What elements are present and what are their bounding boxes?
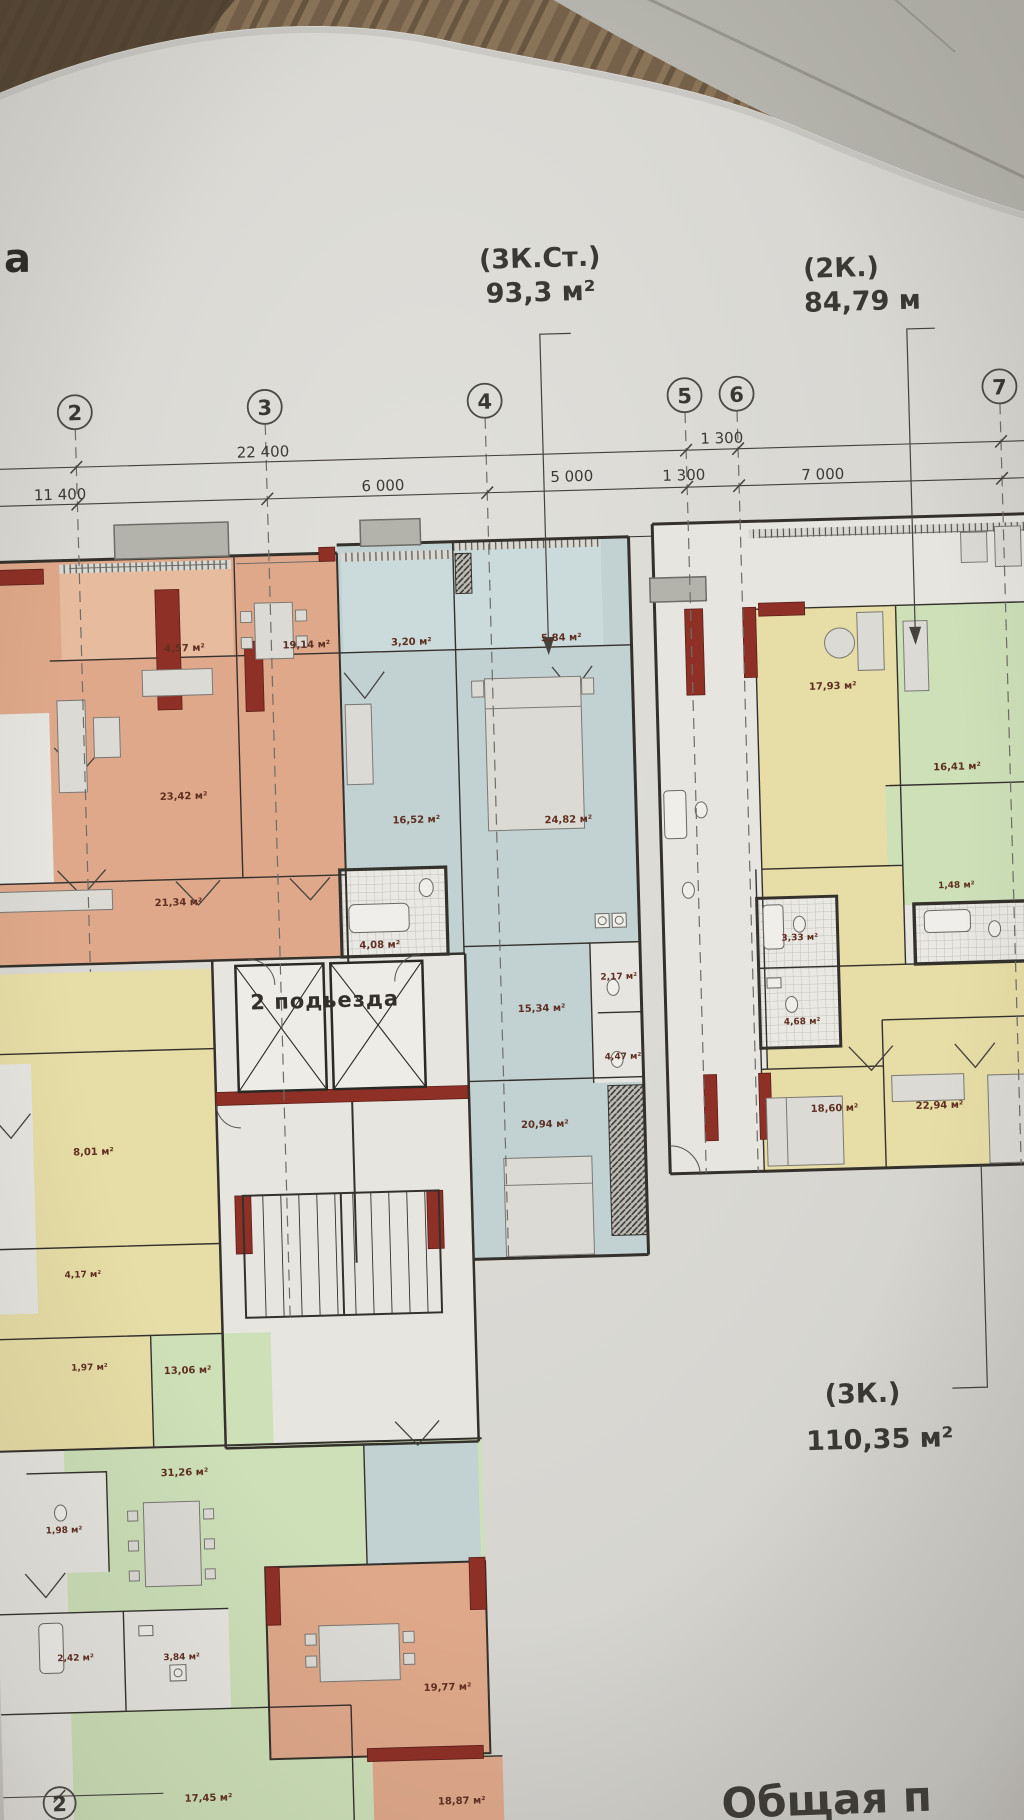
floorplan-photo-page: 22 400 1 300 11 400 6 000 5 000 1 300 7 …	[0, 0, 1024, 1820]
photo-vignette	[0, 0, 1024, 1820]
floorplan-photo: 22 400 1 300 11 400 6 000 5 000 1 300 7 …	[0, 0, 1024, 1820]
